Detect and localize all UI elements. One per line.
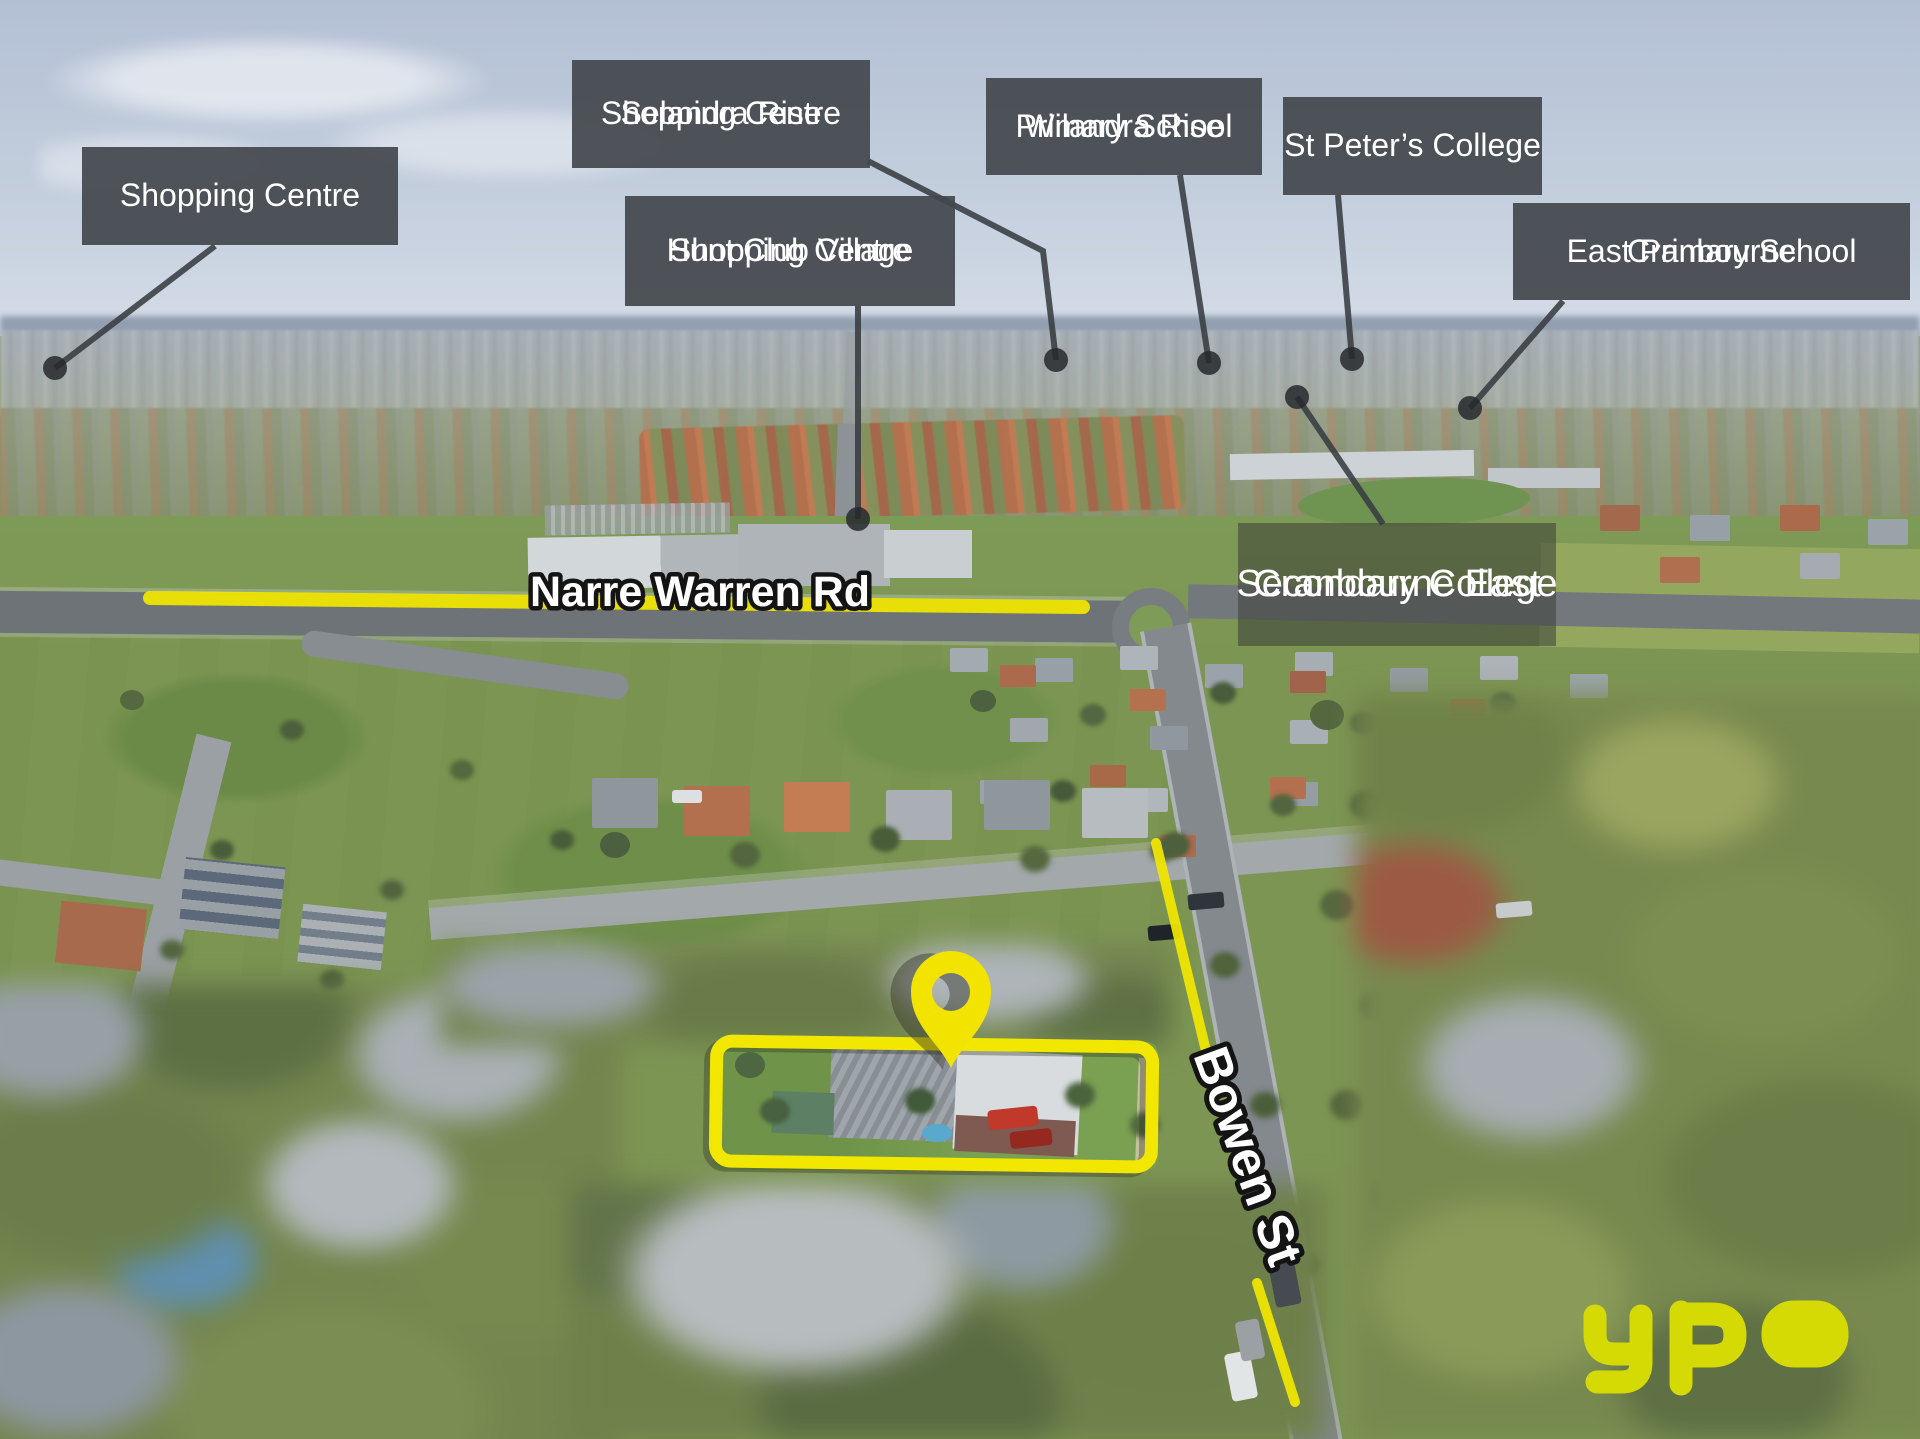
houses-front-row bbox=[592, 778, 658, 828]
house-with-solar-panels bbox=[297, 904, 387, 970]
college-building bbox=[1230, 450, 1474, 480]
label-text: Shopping Centre bbox=[120, 175, 360, 217]
label-cranbourne-east-primary-school: Cranbourne East Primary School bbox=[1513, 203, 1910, 300]
blurred-region-above-property bbox=[440, 945, 1170, 1045]
label-text-line2: Primary School bbox=[1016, 106, 1233, 148]
trees-north bbox=[970, 690, 996, 712]
houses-terracotta bbox=[1000, 665, 1036, 687]
label-text: St Peter’s College bbox=[1284, 125, 1541, 167]
car-park bbox=[545, 502, 730, 535]
label-st-peters-college: St Peter’s College bbox=[1283, 97, 1542, 195]
house-red-roof bbox=[55, 901, 147, 972]
houses-east bbox=[1600, 505, 1640, 531]
label-text-line2: Shopping Centre bbox=[601, 93, 841, 135]
label-hunt-club-village-shopping-centre: Hunt Club Village Shopping Centre bbox=[625, 196, 955, 306]
shopping-centre-building bbox=[884, 530, 972, 578]
label-text-line2: East Primary School bbox=[1567, 231, 1857, 273]
property-trees bbox=[735, 1052, 765, 1078]
label-cranbourne-east-secondary-college: Cranbourne East Secondary College bbox=[1238, 523, 1556, 646]
label-text-line2: Shopping Centre bbox=[670, 230, 910, 272]
parked-car bbox=[1495, 900, 1532, 918]
label-selandra-rise-shopping-centre: Selandra Rise Shopping Centre bbox=[572, 60, 870, 168]
label-wilandra-rise-primary-school: Wilandra Rise Primary School bbox=[986, 78, 1262, 175]
houses-north bbox=[950, 648, 988, 672]
shopping-centre-building bbox=[738, 524, 890, 586]
blurred-region-left bbox=[0, 985, 620, 1439]
parked-car bbox=[672, 790, 702, 803]
parked-car bbox=[1187, 891, 1224, 910]
blurred-region-right bbox=[1355, 695, 1920, 1439]
property-path bbox=[1135, 1058, 1159, 1164]
street-trees bbox=[600, 832, 630, 858]
label-text-line2: Secondary College bbox=[1236, 560, 1557, 609]
property-shed bbox=[771, 1091, 834, 1135]
distant-suburbs bbox=[0, 330, 1920, 416]
bowen-street-trees bbox=[1310, 700, 1344, 730]
parked-car bbox=[1147, 924, 1180, 942]
shopping-centre-building bbox=[528, 534, 743, 590]
house-with-solar-panels bbox=[179, 857, 286, 939]
kiddie-pool bbox=[922, 1124, 952, 1142]
blurred-region-bottom bbox=[570, 1185, 1325, 1439]
label-shopping-centre: Shopping Centre bbox=[82, 147, 398, 245]
field-trees bbox=[120, 690, 144, 710]
aerial-property-map: Narre Warren Rd Bowen St ypa Shopping Ce… bbox=[0, 0, 1920, 1439]
